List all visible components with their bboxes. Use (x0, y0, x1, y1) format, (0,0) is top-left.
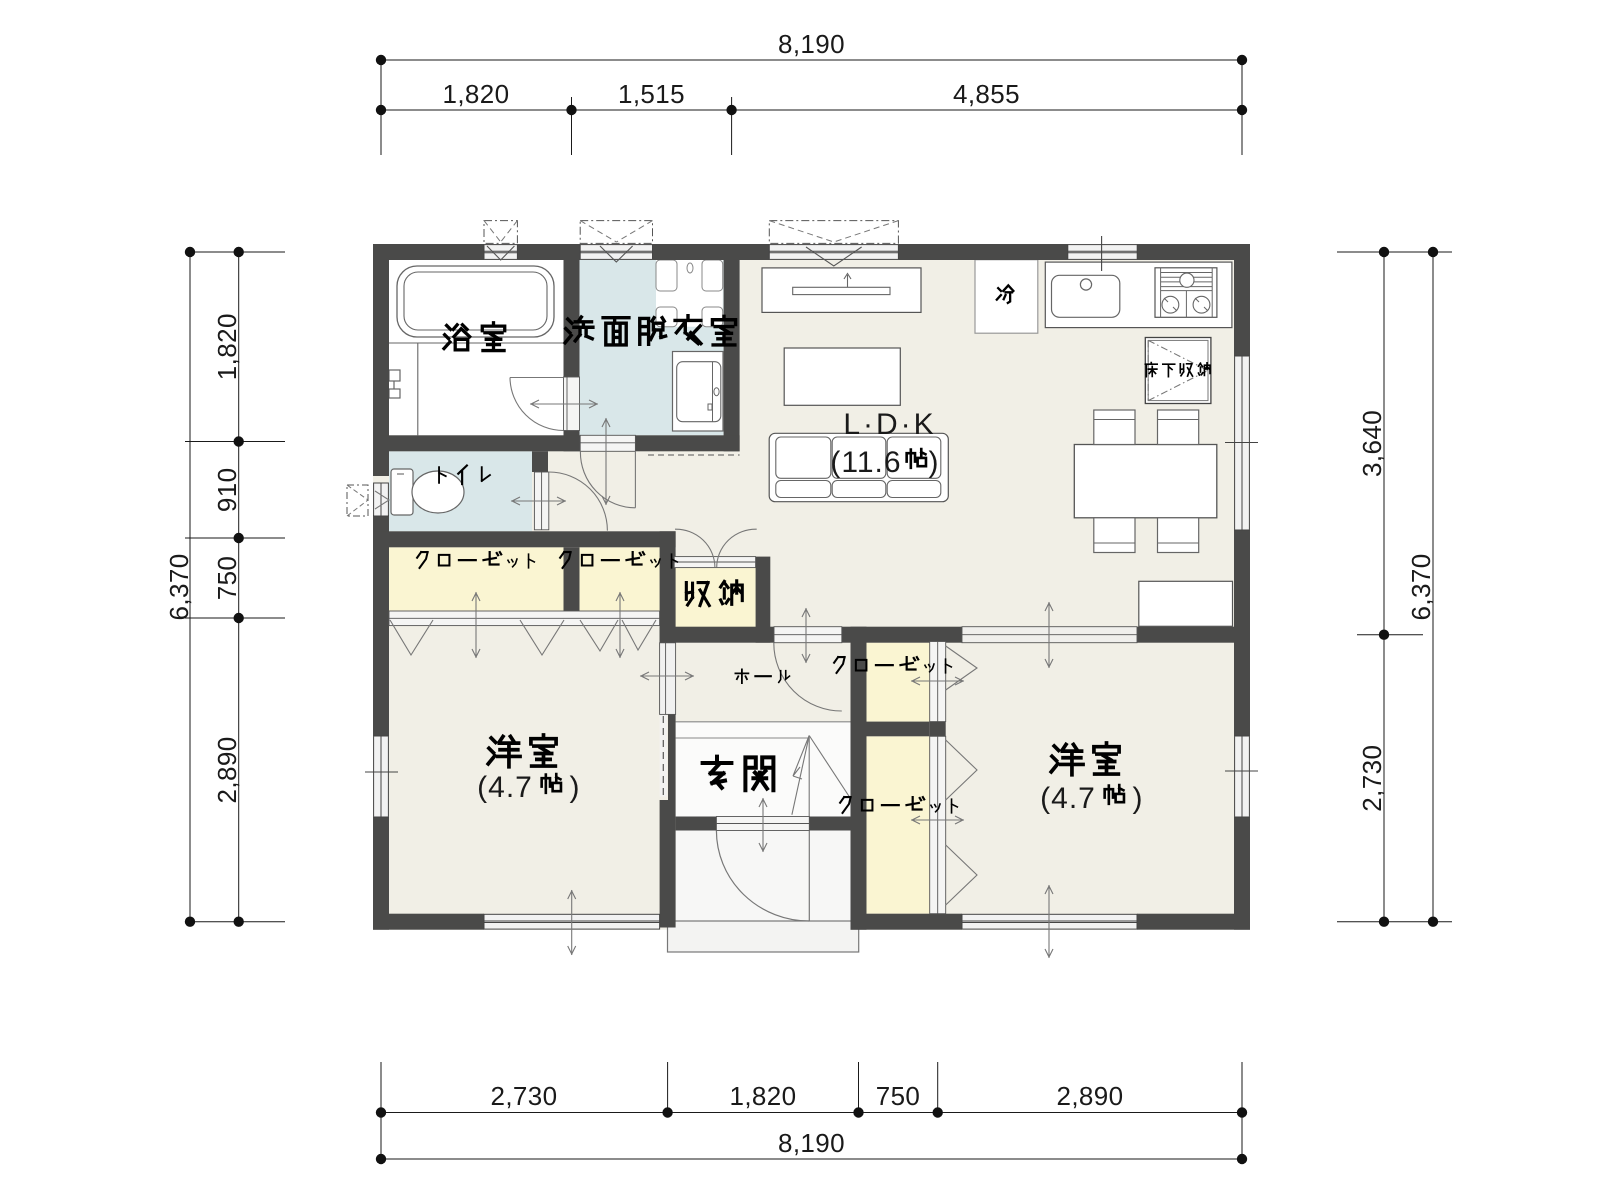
svg-text:750: 750 (212, 556, 242, 601)
svg-text:): ) (929, 446, 940, 479)
svg-text:2,890: 2,890 (1056, 1081, 1123, 1111)
svg-text:2,890: 2,890 (212, 736, 242, 803)
svg-text:1,820: 1,820 (212, 313, 242, 380)
svg-text:8,190: 8,190 (778, 29, 845, 59)
svg-text:8,190: 8,190 (778, 1128, 845, 1158)
svg-text:6,370: 6,370 (1406, 553, 1436, 620)
svg-text:1,820: 1,820 (442, 79, 509, 109)
svg-text:4,855: 4,855 (953, 79, 1020, 109)
svg-text:1,515: 1,515 (618, 79, 685, 109)
svg-text:6,370: 6,370 (164, 553, 194, 620)
svg-text:(11.6: (11.6 (830, 446, 901, 479)
svg-text:(4.7: (4.7 (1040, 782, 1096, 815)
svg-text:1,820: 1,820 (729, 1081, 796, 1111)
svg-text:750: 750 (876, 1081, 921, 1111)
svg-text:(4.7: (4.7 (477, 771, 533, 804)
svg-text:L·D·K: L·D·K (843, 408, 936, 441)
svg-text:3,640: 3,640 (1357, 410, 1387, 477)
svg-text:): ) (1133, 782, 1144, 815)
svg-text:2,730: 2,730 (1357, 745, 1387, 812)
svg-text:): ) (570, 771, 581, 804)
svg-text:2,730: 2,730 (490, 1081, 557, 1111)
svg-text:910: 910 (212, 468, 242, 513)
